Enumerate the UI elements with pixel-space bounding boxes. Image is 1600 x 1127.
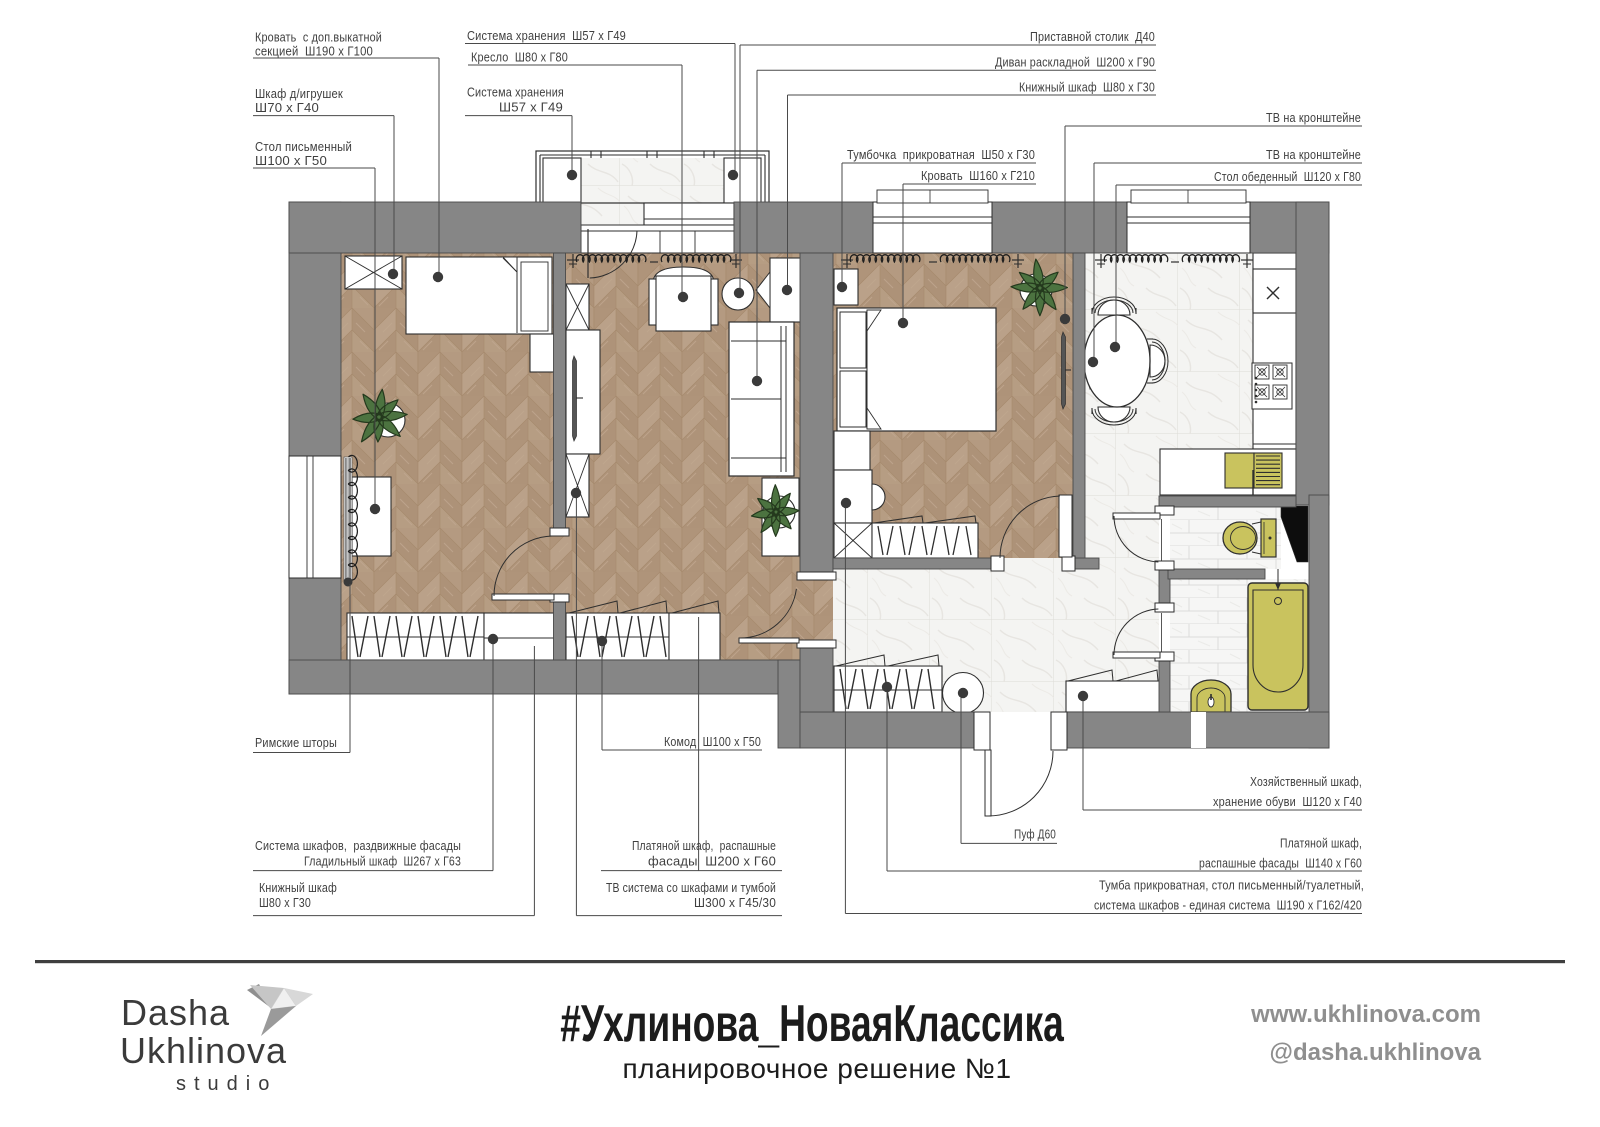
svg-text:Ш80 х Г30: Ш80 х Г30 bbox=[259, 895, 311, 910]
svg-text:Ш57 х Г49: Ш57 х Г49 bbox=[499, 100, 563, 115]
svg-text:ТВ на кронштейне: ТВ на кронштейне bbox=[1266, 147, 1361, 162]
svg-text:ТВ на кронштейне: ТВ на кронштейне bbox=[1266, 110, 1361, 125]
svg-text:Ш70 х Г40: Ш70 х Г40 bbox=[255, 100, 319, 115]
svg-text:#Ухлинова_НоваяКлассика: #Ухлинова_НоваяКлассика bbox=[560, 994, 1064, 1053]
svg-text:studio: studio bbox=[176, 1073, 277, 1095]
svg-text:Ш300 х Г45/30: Ш300 х Г45/30 bbox=[694, 895, 776, 910]
svg-text:Кровать с доп.выкатной: Кровать с доп.выкатной bbox=[255, 30, 382, 45]
svg-text:Гладильный шкаф Ш267 х Г63: Гладильный шкаф Ш267 х Г63 bbox=[304, 854, 461, 869]
svg-text:@dasha.ukhlinova: @dasha.ukhlinova bbox=[1270, 1039, 1482, 1066]
svg-text:секцией Ш190 х Г100: секцией Ш190 х Г100 bbox=[255, 43, 373, 58]
svg-text:Система хранения Ш57 х Г49: Система хранения Ш57 х Г49 bbox=[467, 28, 626, 43]
svg-text:система шкафов - единая систем: система шкафов - единая система Ш190 х Г… bbox=[1094, 898, 1362, 913]
svg-text:ТВ система со шкафами и тумбой: ТВ система со шкафами и тумбой bbox=[606, 880, 776, 895]
svg-text:Пуф Д60: Пуф Д60 bbox=[1014, 827, 1056, 842]
svg-text:Хозяйственный шкаф,: Хозяйственный шкаф, bbox=[1250, 774, 1362, 789]
svg-text:Стол письменный: Стол письменный bbox=[255, 139, 352, 154]
svg-text:Тумба прикроватная, стол письм: Тумба прикроватная, стол письменный/туал… bbox=[1099, 878, 1364, 893]
svg-text:Книжный шкаф: Книжный шкаф bbox=[259, 880, 337, 895]
svg-text:Шкаф д/игрушек: Шкаф д/игрушек bbox=[255, 86, 343, 101]
svg-text:Комод Ш100 х Г50: Комод Ш100 х Г50 bbox=[664, 734, 761, 749]
svg-text:хранение обуви Ш120 х Г40: хранение обуви Ш120 х Г40 bbox=[1213, 794, 1362, 809]
svg-text:Dasha: Dasha bbox=[121, 992, 230, 1033]
svg-text:Стол обеденный Ш120 х Г80: Стол обеденный Ш120 х Г80 bbox=[1214, 169, 1361, 184]
svg-text:Диван раскладной Ш200 х Г90: Диван раскладной Ш200 х Г90 bbox=[995, 55, 1155, 70]
svg-text:Книжный шкаф Ш80 х Г30: Книжный шкаф Ш80 х Г30 bbox=[1019, 80, 1155, 95]
svg-text:Кресло Ш80 х Г80: Кресло Ш80 х Г80 bbox=[471, 50, 568, 65]
svg-text:Тумбочка прикроватная Ш50 х: Тумбочка прикроватная Ш50 х Г30 bbox=[847, 147, 1035, 162]
svg-text:Платяной шкаф, распашные: Платяной шкаф, распашные bbox=[632, 838, 776, 853]
svg-text:распашные фасады Ш140 х Г60: распашные фасады Ш140 х Г60 bbox=[1199, 856, 1362, 871]
svg-text:www.ukhlinova.com: www.ukhlinova.com bbox=[1250, 1001, 1481, 1028]
svg-text:Ukhlinova: Ukhlinova bbox=[120, 1030, 287, 1071]
svg-text:Система шкафов, раздвижные фа: Система шкафов, раздвижные фасады bbox=[255, 838, 461, 853]
svg-text:планировочное решение №1: планировочное решение №1 bbox=[622, 1053, 1011, 1084]
svg-text:Платяной шкаф,: Платяной шкаф, bbox=[1280, 836, 1362, 851]
svg-text:Римские шторы: Римские шторы bbox=[255, 735, 337, 750]
svg-text:Кровать Ш160 х Г210: Кровать Ш160 х Г210 bbox=[921, 168, 1035, 183]
svg-text:фасады Ш200 х Г60: фасады Ш200 х Г60 bbox=[648, 854, 776, 869]
svg-text:Приставной столик Д40: Приставной столик Д40 bbox=[1030, 29, 1155, 44]
svg-text:Ш100 х Г50: Ш100 х Г50 bbox=[255, 153, 327, 168]
svg-text:Система хранения: Система хранения bbox=[467, 85, 564, 100]
